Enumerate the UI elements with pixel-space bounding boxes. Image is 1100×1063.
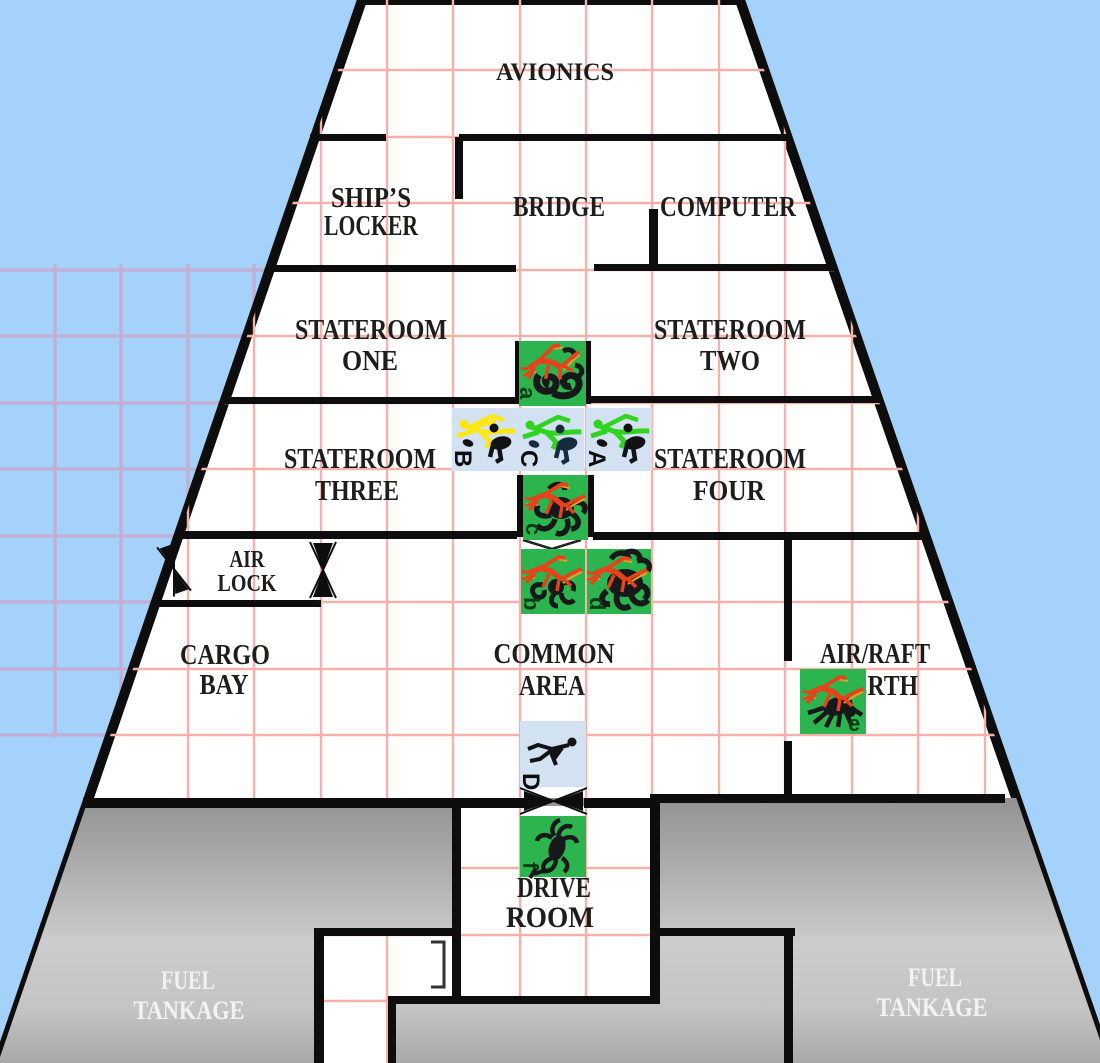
svg-text:AVIONICS: AVIONICS [496,59,614,86]
svg-text:A: A [583,450,610,467]
svg-text:a: a [515,387,540,400]
svg-text:B: B [449,450,476,467]
svg-text:BRIDGE: BRIDGE [513,192,605,223]
svg-text:SHIP’S: SHIP’S [331,183,411,214]
svg-text:TANKAGE: TANKAGE [134,996,245,1025]
svg-text:AIR/RAFT: AIR/RAFT [820,639,930,670]
svg-text:AIR: AIR [230,547,266,573]
svg-text:ONE: ONE [342,346,398,377]
svg-text:STATEROOM: STATEROOM [295,315,447,346]
svg-text:TANKAGE: TANKAGE [877,993,988,1022]
svg-text:b: b [519,597,544,610]
svg-text:e: e [848,711,860,736]
svg-text:c: c [521,523,546,535]
svg-text:FOUR: FOUR [693,476,766,507]
svg-text:C: C [515,450,542,467]
svg-text:BAY: BAY [200,670,249,701]
svg-text:D: D [517,773,544,790]
svg-text:CARGO: CARGO [180,639,270,671]
svg-text:LOCKER: LOCKER [324,211,419,242]
svg-text:FUEL: FUEL [161,966,215,995]
svg-text:f: f [518,862,543,870]
svg-text:d: d [585,597,610,610]
svg-text:STATEROOM: STATEROOM [654,444,806,475]
svg-text:DRIVE: DRIVE [517,873,591,904]
svg-text:TWO: TWO [700,346,760,377]
svg-text:FUEL: FUEL [908,963,962,992]
svg-text:STATEROOM: STATEROOM [284,444,436,475]
svg-text:AREA: AREA [519,671,586,702]
svg-text:LOCK: LOCK [218,571,277,597]
svg-text:COMMON: COMMON [494,639,615,670]
svg-text:ROOM: ROOM [506,901,594,934]
svg-text:COMPUTER: COMPUTER [660,192,797,223]
svg-text:STATEROOM: STATEROOM [654,315,806,346]
svg-text:THREE: THREE [315,476,399,507]
